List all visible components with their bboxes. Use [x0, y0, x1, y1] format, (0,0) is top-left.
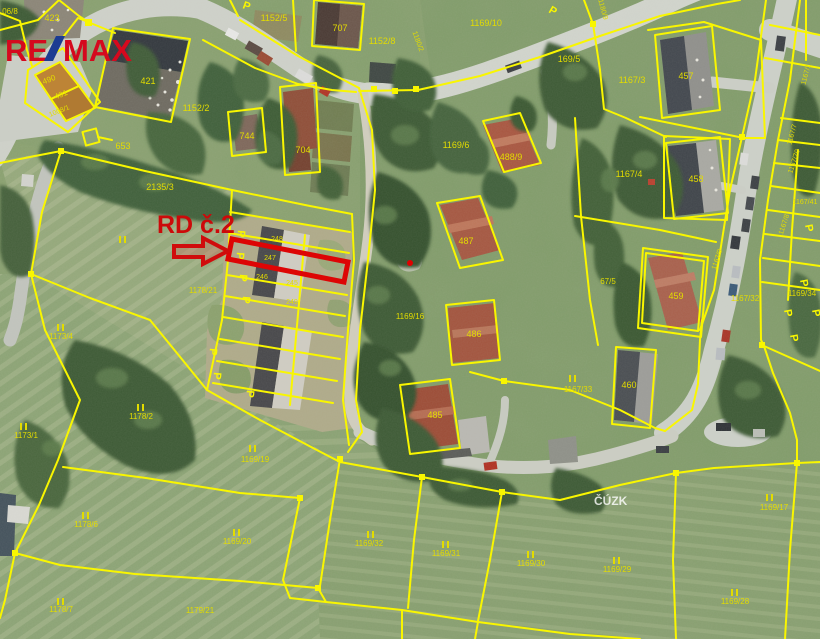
svg-text:458: 458: [688, 174, 703, 184]
svg-text:1152/5: 1152/5: [261, 13, 288, 23]
svg-text:485: 485: [427, 410, 442, 420]
svg-text:704: 704: [295, 145, 310, 155]
svg-text:488/9: 488/9: [500, 152, 523, 162]
svg-text:1178/21: 1178/21: [189, 286, 218, 295]
svg-text:169/5: 169/5: [558, 54, 581, 64]
svg-text:1178/7: 1178/7: [49, 605, 73, 614]
svg-text:248: 248: [271, 236, 283, 243]
svg-text:1152/8: 1152/8: [369, 36, 396, 46]
svg-text:RE: RE: [5, 33, 48, 68]
svg-text:1169/19: 1169/19: [241, 455, 270, 464]
svg-text:1173/1: 1173/1: [14, 431, 38, 440]
svg-text:1169/20: 1169/20: [223, 537, 252, 546]
svg-text:P: P: [210, 372, 223, 380]
svg-text:744: 744: [239, 131, 254, 141]
svg-text:1167/3: 1167/3: [619, 75, 646, 85]
svg-text:460: 460: [621, 380, 636, 390]
svg-text:P: P: [234, 230, 247, 238]
svg-text:1178/2: 1178/2: [129, 412, 153, 421]
svg-text:P: P: [206, 348, 219, 356]
svg-text:2135/3: 2135/3: [146, 182, 174, 192]
svg-text:1178/6: 1178/6: [74, 520, 98, 529]
svg-text:245: 245: [286, 280, 298, 287]
svg-text:1169/34: 1169/34: [788, 289, 817, 298]
svg-text:1169/17: 1169/17: [760, 503, 789, 512]
svg-text:487: 487: [458, 236, 473, 246]
svg-text:06/8: 06/8: [2, 7, 18, 16]
svg-text:1179/21: 1179/21: [186, 606, 215, 615]
svg-text:459: 459: [668, 291, 683, 301]
svg-text:1167/4: 1167/4: [616, 169, 643, 179]
svg-text:RD č.2: RD č.2: [157, 211, 235, 239]
svg-text:457: 457: [678, 71, 693, 81]
svg-text:249: 249: [286, 299, 298, 306]
svg-text:67/5: 67/5: [600, 277, 616, 286]
svg-text:ČÚZK: ČÚZK: [594, 493, 628, 508]
svg-text:P: P: [236, 274, 249, 282]
svg-text:1173/4: 1173/4: [49, 332, 73, 341]
svg-text:1169/32: 1169/32: [355, 539, 384, 548]
svg-text:1167/33: 1167/33: [564, 385, 593, 394]
svg-text:707: 707: [332, 23, 347, 33]
svg-text:1169/6: 1169/6: [443, 140, 470, 150]
svg-text:653: 653: [115, 141, 130, 151]
svg-text:P: P: [243, 390, 256, 398]
svg-text:1169/30: 1169/30: [517, 559, 546, 568]
svg-text:1169/31: 1169/31: [432, 549, 461, 558]
svg-text:P: P: [239, 296, 252, 304]
svg-text:1169/16: 1169/16: [396, 312, 425, 321]
svg-text:1152/2: 1152/2: [183, 103, 210, 113]
svg-text:MAX: MAX: [63, 33, 132, 68]
svg-text:486: 486: [466, 329, 481, 339]
svg-text:1167/41: 1167/41: [793, 199, 818, 206]
svg-text:423: 423: [44, 13, 59, 23]
svg-text:1169/28: 1169/28: [721, 597, 750, 606]
svg-text:1169/29: 1169/29: [603, 565, 632, 574]
svg-text:246: 246: [256, 274, 268, 281]
svg-text:421: 421: [140, 76, 155, 86]
svg-text:1167/32: 1167/32: [731, 294, 760, 303]
svg-text:247: 247: [264, 255, 276, 262]
svg-text:1169/10: 1169/10: [470, 18, 502, 28]
